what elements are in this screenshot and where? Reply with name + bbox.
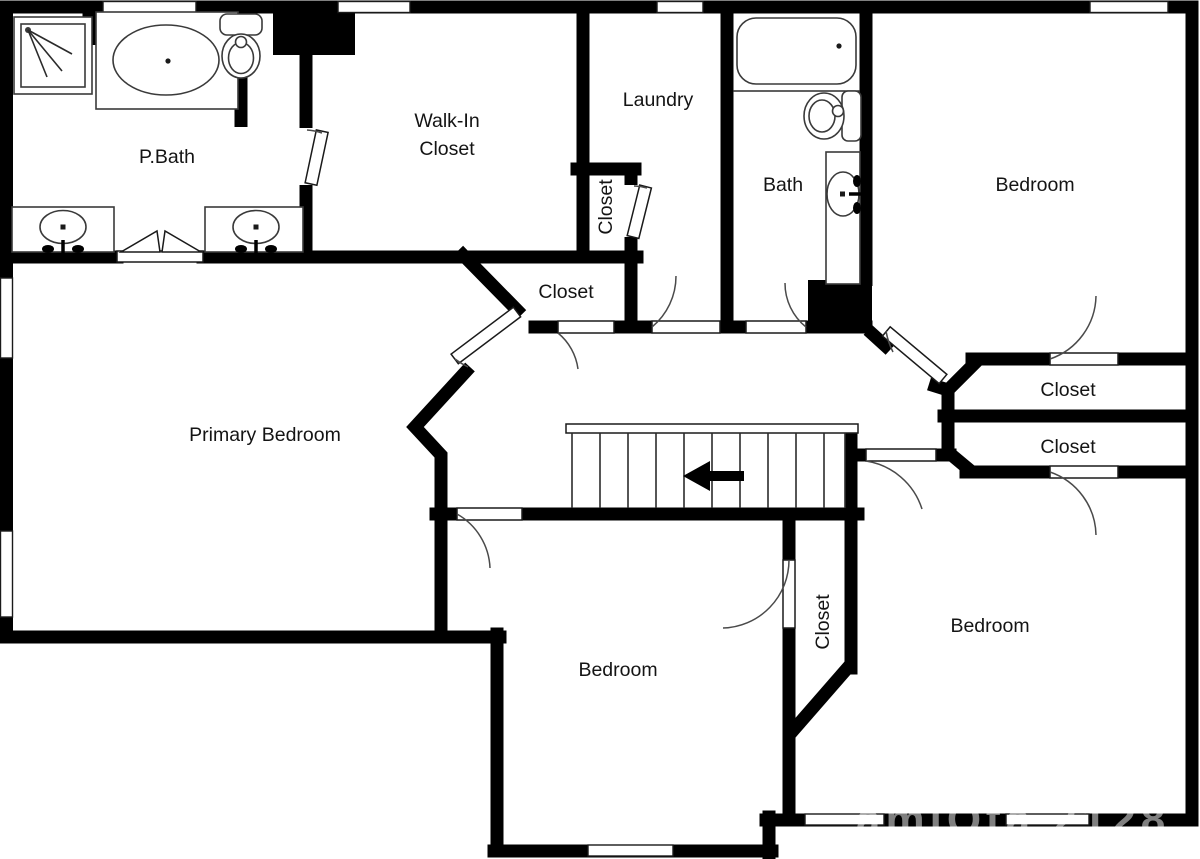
stairs-arrow-icon — [683, 461, 744, 491]
door-bedroom-top-right — [882, 327, 946, 384]
watermark: amlOta 2128 — [856, 795, 1170, 844]
shower-icon — [14, 17, 92, 94]
toilet-icon — [804, 91, 861, 141]
door-closet-bottom-middle — [723, 560, 795, 628]
window — [338, 2, 410, 13]
window — [1, 278, 13, 358]
room-label-bedroom-bottom-right: Bedroom — [950, 615, 1029, 637]
room-label-laundry: Laundry — [623, 89, 694, 111]
room-label-closet-right-upper: Closet — [1040, 379, 1096, 401]
bathtub-oval-icon — [96, 12, 238, 109]
room-label-primary-bedroom: Primary Bedroom — [189, 424, 341, 446]
room-label-hall-closet: Closet — [538, 281, 594, 303]
floor-plan: P.Bath Walk-In Closet Laundry Closet Bat… — [0, 0, 1200, 859]
window — [588, 845, 673, 856]
window — [657, 2, 703, 13]
door-walk-in-closet — [305, 130, 328, 185]
room-label-p-bath: P.Bath — [139, 146, 195, 168]
door-bath — [746, 283, 806, 333]
window — [1, 531, 13, 617]
room-label-walk-in-line2: Closet — [419, 138, 475, 160]
bathtub-icon — [733, 18, 860, 91]
door-primary-bedroom — [451, 307, 521, 367]
toilet-icon — [220, 14, 262, 78]
interior-walls — [1, 3, 1190, 820]
door-hall-closet — [558, 321, 614, 369]
room-label-closet-right-lower: Closet — [1040, 436, 1096, 458]
room-label-closet-bottom-middle: Closet — [812, 594, 834, 650]
room-label-walk-in-line1: Walk-In — [414, 110, 479, 132]
door-closet-right-upper — [1050, 296, 1118, 365]
room-label-bath: Bath — [763, 174, 803, 196]
door-laundry — [652, 276, 720, 333]
window — [1090, 2, 1168, 13]
stairs — [566, 424, 858, 508]
floor-plan-page: P.Bath Walk-In Closet Laundry Closet Bat… — [0, 0, 1200, 859]
door-bedroom-bottom-middle — [457, 508, 522, 568]
door-bedroom-bottom-right — [866, 449, 936, 509]
room-label-bedroom-top-right: Bedroom — [995, 174, 1074, 196]
sink-icon — [12, 207, 114, 254]
room-label-bedroom-bottom-middle: Bedroom — [578, 659, 657, 681]
door-laundry-closet — [627, 185, 651, 238]
sink-icon — [826, 152, 862, 284]
door-closet-right-lower — [1050, 466, 1118, 535]
stairs-rail — [566, 424, 858, 433]
window — [103, 2, 196, 13]
room-label-laundry-closet: Closet — [595, 179, 617, 235]
sink-icon — [205, 207, 303, 254]
door-p-bath-double — [117, 231, 203, 262]
